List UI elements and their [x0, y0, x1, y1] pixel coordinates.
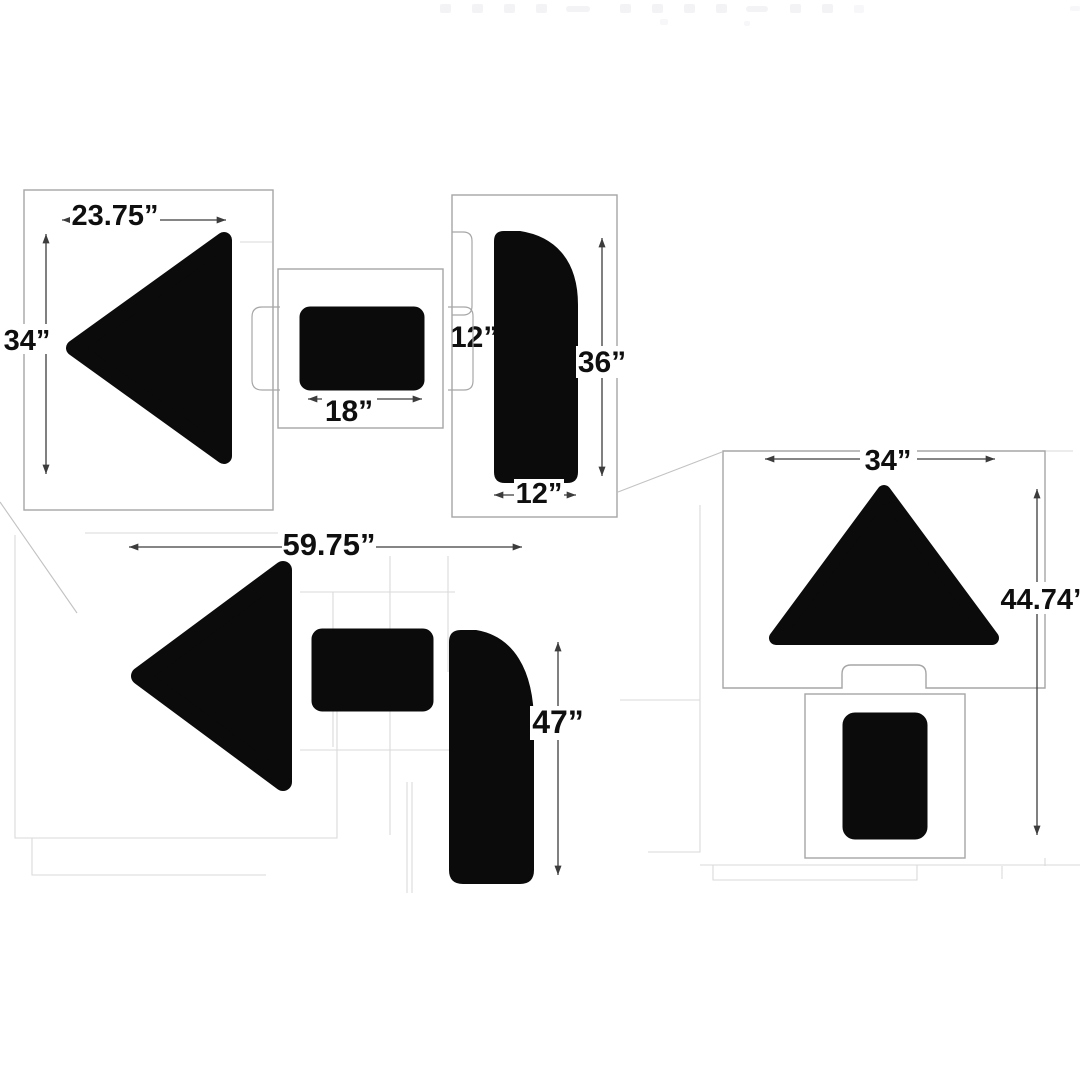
- assembled-stem-shape: [450, 631, 533, 883]
- dim-label-arrowhead-height: 34”: [4, 325, 51, 357]
- dim-label-turn-stem-height: 47”: [532, 704, 584, 740]
- assembled-turn-arrow-group: 59.75” 47”: [129, 527, 587, 883]
- assembled-rectangle-shape: [312, 629, 433, 711]
- diagram-canvas: 23.75” 34” 12” 18” 36” 12” 59.75”: [0, 0, 1080, 1080]
- up-arrow-stencil-group: 34” 44.74”: [723, 442, 1080, 858]
- watermark-dots: [440, 4, 1080, 26]
- stencil-dimension-diagram: 23.75” 34” 12” 18” 36” 12” 59.75”: [0, 0, 1080, 1080]
- stem-stencil-group: 36” 12”: [448, 195, 628, 517]
- arrowhead-left-triangle-shape: [74, 240, 224, 456]
- rectangle-shape: [300, 307, 424, 390]
- dim-label-up-assembled-height: 44.74”: [1000, 584, 1080, 616]
- dim-label-up-triangle-width: 34”: [865, 445, 912, 477]
- rectangle-sheet-left-tab: [252, 307, 280, 390]
- leader-diagonal-center: [618, 452, 722, 492]
- dim-label-rect-width: 18”: [325, 395, 373, 428]
- up-rectangle-shape: [843, 713, 927, 839]
- stem-shape: [495, 232, 577, 482]
- dim-label-arrowhead-width: 23.75”: [71, 200, 158, 232]
- dim-label-assembled-width: 59.75”: [282, 527, 375, 562]
- arrowhead-stencil-group: 23.75” 34”: [4, 190, 273, 510]
- dim-label-rect-height: 12”: [450, 321, 498, 354]
- leader-diagonal-left: [0, 502, 77, 613]
- assembled-arrowhead-shape: [140, 570, 283, 782]
- dim-label-stem-width: 12”: [516, 478, 563, 510]
- stem-sheet-left-tab-upper: [452, 232, 472, 315]
- rectangle-stencil-group: 12” 18”: [252, 269, 498, 428]
- dim-label-stem-height: 36”: [578, 346, 626, 379]
- up-triangle-shape: [776, 492, 992, 638]
